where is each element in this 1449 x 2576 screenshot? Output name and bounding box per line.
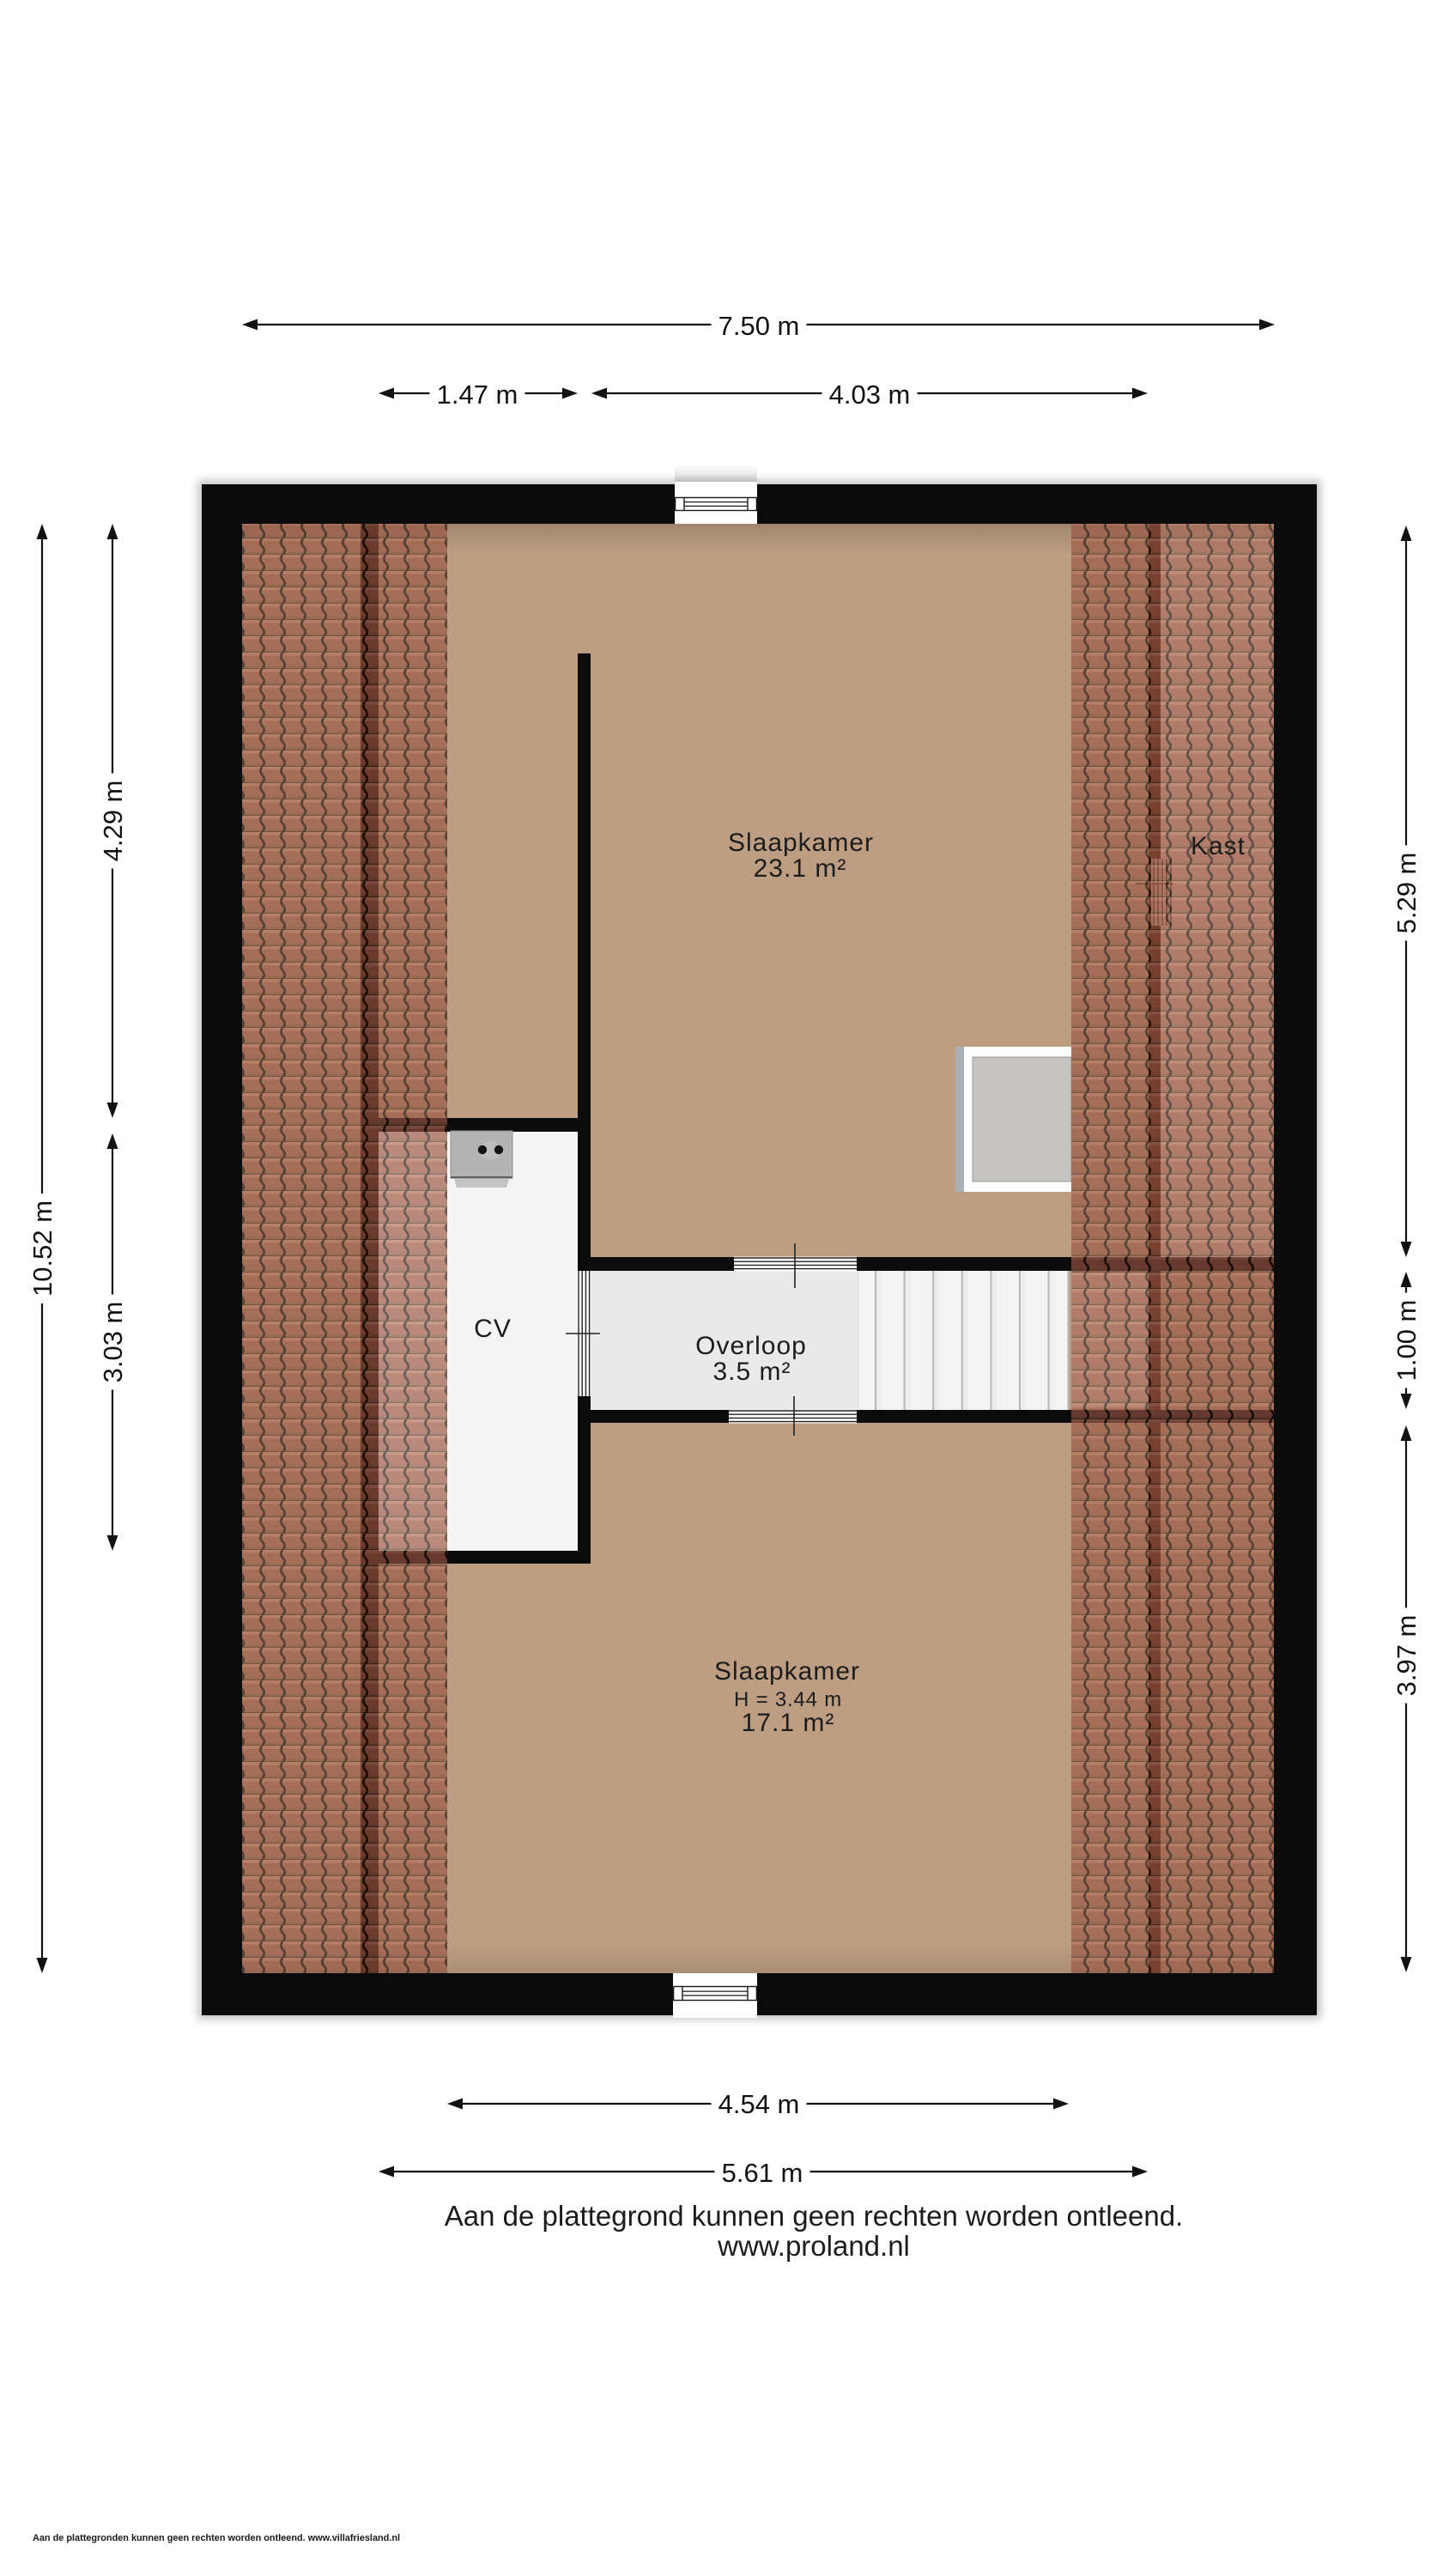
svg-text:Overloop: Overloop — [695, 1332, 807, 1360]
svg-text:H = 3.44 m: H = 3.44 m — [734, 1688, 842, 1711]
svg-text:4.03 m: 4.03 m — [829, 380, 911, 410]
svg-text:Aan de plattegrond kunnen geen: Aan de plattegrond kunnen geen rechten w… — [445, 2200, 1184, 2232]
svg-text:Slaapkamer: Slaapkamer — [714, 1657, 860, 1686]
svg-text:5.61 m: 5.61 m — [722, 2158, 803, 2188]
svg-text:3.03 m: 3.03 m — [98, 1302, 128, 1383]
svg-text:1.00 m: 1.00 m — [1391, 1300, 1422, 1382]
svg-text:CV: CV — [474, 1315, 512, 1343]
svg-text:3.5 m²: 3.5 m² — [712, 1358, 791, 1386]
svg-text:4.54 m: 4.54 m — [718, 2089, 800, 2119]
svg-text:3.97 m: 3.97 m — [1391, 1615, 1422, 1697]
svg-text:Aan de plattegronden kunnen ge: Aan de plattegronden kunnen geen rechten… — [33, 2533, 400, 2543]
svg-text:Kast: Kast — [1191, 832, 1246, 860]
svg-text:1.47 m: 1.47 m — [437, 380, 518, 410]
svg-text:23.1 m²: 23.1 m² — [754, 854, 847, 883]
svg-text:4.29 m: 4.29 m — [98, 781, 128, 862]
svg-text:www.proland.nl: www.proland.nl — [717, 2230, 910, 2262]
svg-text:5.29 m: 5.29 m — [1391, 853, 1422, 934]
svg-text:10.52 m: 10.52 m — [27, 1200, 58, 1297]
svg-text:Slaapkamer: Slaapkamer — [728, 829, 874, 857]
svg-text:17.1 m²: 17.1 m² — [742, 1709, 835, 1737]
svg-text:7.50 m: 7.50 m — [718, 311, 800, 341]
